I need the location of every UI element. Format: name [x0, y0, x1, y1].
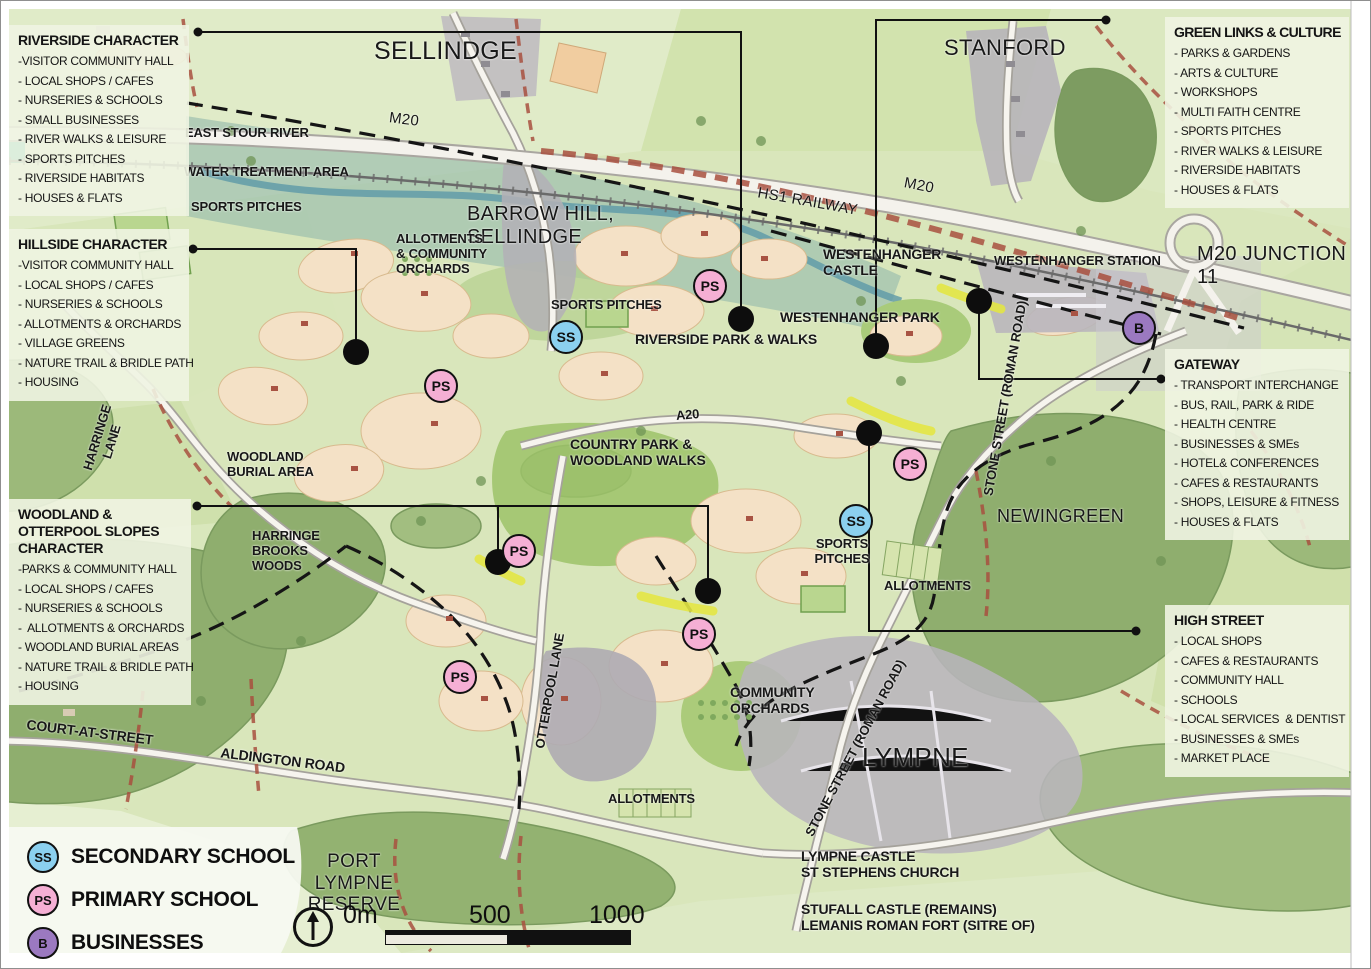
secondary-school-icon: SS — [27, 841, 59, 873]
map-label-barrow-hill: BARROW HILL, SELLINDGE — [467, 203, 614, 249]
primary-school-marker: PS — [693, 269, 727, 303]
callout-title: GATEWAY — [1174, 356, 1340, 373]
map-label-a20: A20 — [675, 407, 699, 424]
callout-item: - NATURE TRAIL & BRIDLE PATH — [18, 658, 182, 678]
scale-bar — [385, 930, 631, 945]
marker-text: PS — [451, 669, 470, 685]
callout-item: - TRANSPORT INTERCHANGE — [1174, 376, 1340, 396]
marker-text: PS — [701, 278, 720, 294]
scale-zero: 0m — [343, 901, 378, 930]
businesses-icon: B — [27, 927, 59, 959]
callout-item-list: - TRANSPORT INTERCHANGE- BUS, RAIL, PARK… — [1174, 376, 1340, 532]
legend-symbol: SS — [34, 850, 51, 865]
map-label-lympne: LYMPNE — [862, 743, 969, 773]
callout-item: - VILLAGE GREENS — [18, 334, 180, 354]
callout-item: - NURSERIES & SCHOOLS — [18, 295, 180, 315]
callout-high-street: HIGH STREET - LOCAL SHOPS- CAFES & RESTA… — [1165, 605, 1349, 777]
callout-item: - SPORTS PITCHES — [1174, 122, 1340, 142]
callout-item: - RIVERSIDE HABITATS — [1174, 161, 1340, 181]
map-label-sports-pitches-center: SPORTS PITCHES — [551, 298, 662, 313]
callout-title: HIGH STREET — [1174, 612, 1340, 629]
callout-item: - RIVER WALKS & LEISURE — [18, 130, 180, 150]
scale-mid: 500 — [469, 901, 511, 930]
callout-item: - ALLOTMENTS & ORCHARDS — [18, 315, 180, 335]
callout-item: - WOODLAND BURIAL AREAS — [18, 638, 182, 658]
legend-label: SECONDARY SCHOOL — [71, 845, 295, 869]
callout-item: -VISITOR COMMUNITY HALL — [18, 52, 180, 72]
map-label-lympne-castle: LYMPNE CASTLE ST STEPHENS CHURCH — [801, 849, 959, 881]
callout-item: - COMMUNITY HALL — [1174, 671, 1340, 691]
legend-row-primary-school: PS PRIMARY SCHOOL — [27, 884, 258, 916]
map-label-woodland-burial-area: WOODLAND BURIAL AREA — [227, 450, 314, 480]
callout-title: GREEN LINKS & CULTURE — [1174, 24, 1340, 41]
callout-title: RIVERSIDE CHARACTER — [18, 32, 180, 49]
legend-symbol: PS — [34, 893, 51, 908]
map-label-newingreen: NEWINGREEN — [997, 506, 1124, 527]
marker-text: PS — [901, 456, 920, 472]
primary-school-marker: PS — [502, 534, 536, 568]
businesses-marker: B — [1122, 311, 1156, 345]
callout-item: - NATURE TRAIL & BRIDLE PATH — [18, 354, 180, 374]
callout-item: - HOUSES & FLATS — [18, 189, 180, 209]
callout-item: - CAFES & RESTAURANTS — [1174, 474, 1340, 494]
marker-text: B — [1134, 320, 1144, 336]
callout-item-list: -VISITOR COMMUNITY HALL- LOCAL SHOPS / C… — [18, 256, 180, 393]
map-label-allotments-south: ALLOTMENTS — [608, 792, 695, 807]
marker-text: SS — [557, 329, 576, 345]
marker-text: PS — [690, 626, 709, 642]
map-label-water-treatment-area: WATER TREATMENT AREA — [184, 165, 349, 180]
secondary-school-marker: SS — [549, 320, 583, 354]
marker-text: SS — [847, 513, 866, 529]
callout-item: - HEALTH CENTRE — [1174, 415, 1340, 435]
map-label-stufall-castle: STUFALL CASTLE (REMAINS) LEMANIS ROMAN F… — [801, 902, 1035, 934]
callout-item: - PARKS & GARDENS — [1174, 44, 1340, 64]
callout-item: - HOUSING — [18, 373, 180, 393]
map-label-east-stour-river: EAST STOUR RIVER — [185, 126, 309, 141]
callout-item: - HOUSING — [18, 677, 182, 697]
callout-riverside-character: RIVERSIDE CHARACTER -VISITOR COMMUNITY H… — [9, 25, 189, 216]
map-label-community-orchards: COMMUNITY ORCHARDS — [730, 685, 815, 717]
primary-school-marker: PS — [682, 617, 716, 651]
callout-item-list: -PARKS & COMMUNITY HALL- LOCAL SHOPS / C… — [18, 560, 182, 697]
callout-title: HILLSIDE CHARACTER — [18, 236, 180, 253]
callout-item: -PARKS & COMMUNITY HALL — [18, 560, 182, 580]
callout-item: - ARTS & CULTURE — [1174, 64, 1340, 84]
primary-school-marker: PS — [443, 660, 477, 694]
legend-label: BUSINESSES — [71, 931, 203, 955]
callout-title: WOODLAND & OTTERPOOL SLOPES CHARACTER — [18, 506, 182, 557]
callout-item: - BUSINESSES & SMEs — [1174, 435, 1340, 455]
marker-text: PS — [432, 378, 451, 394]
callout-item: - SHOPS, LEISURE & FITNESS — [1174, 493, 1340, 513]
callout-item: - HOUSES & FLATS — [1174, 513, 1340, 533]
callout-gateway: GATEWAY - TRANSPORT INTERCHANGE- BUS, RA… — [1165, 349, 1349, 540]
legend-row-businesses: B BUSINESSES — [27, 927, 203, 959]
callout-item: - ALLOTMENTS & ORCHARDS — [18, 619, 182, 639]
callout-item: - RIVERSIDE HABITATS — [18, 169, 180, 189]
callout-item-list: - LOCAL SHOPS- CAFES & RESTAURANTS- COMM… — [1174, 632, 1340, 769]
callout-item: - SPORTS PITCHES — [18, 150, 180, 170]
callout-item: - SCHOOLS — [1174, 691, 1340, 711]
scale-bar-segment-light — [385, 934, 508, 945]
callout-woodland-otterpool-slopes: WOODLAND & OTTERPOOL SLOPES CHARACTER -P… — [9, 499, 191, 705]
callout-item: - BUSINESSES & SMEs — [1174, 730, 1340, 750]
map-label-westenhanger-station: WESTENHANGER STATION — [994, 254, 1161, 269]
scale-end: 1000 — [589, 901, 645, 930]
legend-symbol: B — [38, 936, 47, 951]
callout-item: - LOCAL SHOPS / CAFES — [18, 72, 180, 92]
scale-bar-segment-dark — [508, 934, 631, 945]
callout-item: - HOTEL& CONFERENCES — [1174, 454, 1340, 474]
primary-school-icon: PS — [27, 884, 59, 916]
callout-item: - LOCAL SERVICES & DENTIST — [1174, 710, 1340, 730]
callout-item: - CAFES & RESTAURANTS — [1174, 652, 1340, 672]
callout-item: - RIVER WALKS & LEISURE — [1174, 142, 1340, 162]
map-label-westenhanger-park: WESTENHANGER PARK — [780, 310, 940, 326]
callout-item: - MARKET PLACE — [1174, 749, 1340, 769]
callout-item: - BUS, RAIL, PARK & RIDE — [1174, 396, 1340, 416]
callout-item: -VISITOR COMMUNITY HALL — [18, 256, 180, 276]
map-label-allotments-community-orchards: ALLOTMENTS & COMMUNITY ORCHARDS — [396, 232, 487, 276]
map-label-allotments-east: ALLOTMENTS — [884, 579, 971, 594]
callout-item: - LOCAL SHOPS — [1174, 632, 1340, 652]
map-label-country-park: COUNTRY PARK & WOODLAND WALKS — [570, 437, 706, 469]
secondary-school-marker: SS — [839, 504, 873, 538]
legend-label: PRIMARY SCHOOL — [71, 888, 258, 912]
callout-green-links-culture: GREEN LINKS & CULTURE - PARKS & GARDENS-… — [1165, 17, 1349, 208]
callout-item: - NURSERIES & SCHOOLS — [18, 91, 180, 111]
map-label-m20-west: M20 — [388, 109, 420, 130]
primary-school-marker: PS — [893, 447, 927, 481]
callout-item: - LOCAL SHOPS / CAFES — [18, 276, 180, 296]
legend-row-secondary-school: SS SECONDARY SCHOOL — [27, 841, 295, 873]
map-label-harringe-brooks-woods: HARRINGE BROOKS WOODS — [252, 529, 320, 573]
callout-hillside-character: HILLSIDE CHARACTER -VISITOR COMMUNITY HA… — [9, 229, 189, 401]
callout-item: - WORKSHOPS — [1174, 83, 1340, 103]
callout-item: - LOCAL SHOPS / CAFES — [18, 580, 182, 600]
north-arrow-icon — [293, 907, 333, 947]
map-label-stanford: STANFORD — [944, 35, 1066, 60]
callout-item: - HOUSES & FLATS — [1174, 181, 1340, 201]
map-label-sports-pitches-east: SPORTS PITCHES — [809, 537, 875, 567]
marker-text: PS — [510, 543, 529, 559]
callout-item-list: - PARKS & GARDENS- ARTS & CULTURE- WORKS… — [1174, 44, 1340, 200]
callout-item: - SMALL BUSINESSES — [18, 111, 180, 131]
map-label-sellindge: SELLINDGE — [374, 37, 517, 66]
map-label-sports-pitches-nw: SPORTS PITCHES — [191, 200, 302, 215]
callout-item-list: -VISITOR COMMUNITY HALL- LOCAL SHOPS / C… — [18, 52, 180, 208]
otterpool-masterplan-map: SELLINDGE STANFORD M20 M20 HS1 RAILWAY M… — [0, 0, 1371, 969]
map-label-m20-junction-11: M20 JUNCTION 11 — [1197, 243, 1370, 289]
callout-item: - MULTI FAITH CENTRE — [1174, 103, 1340, 123]
callout-item: - NURSERIES & SCHOOLS — [18, 599, 182, 619]
map-label-westenhanger-castle: WESTENHANGER CASTLE — [823, 247, 941, 279]
primary-school-marker: PS — [424, 369, 458, 403]
map-label-riverside-park-walks: RIVERSIDE PARK & WALKS — [635, 332, 817, 348]
